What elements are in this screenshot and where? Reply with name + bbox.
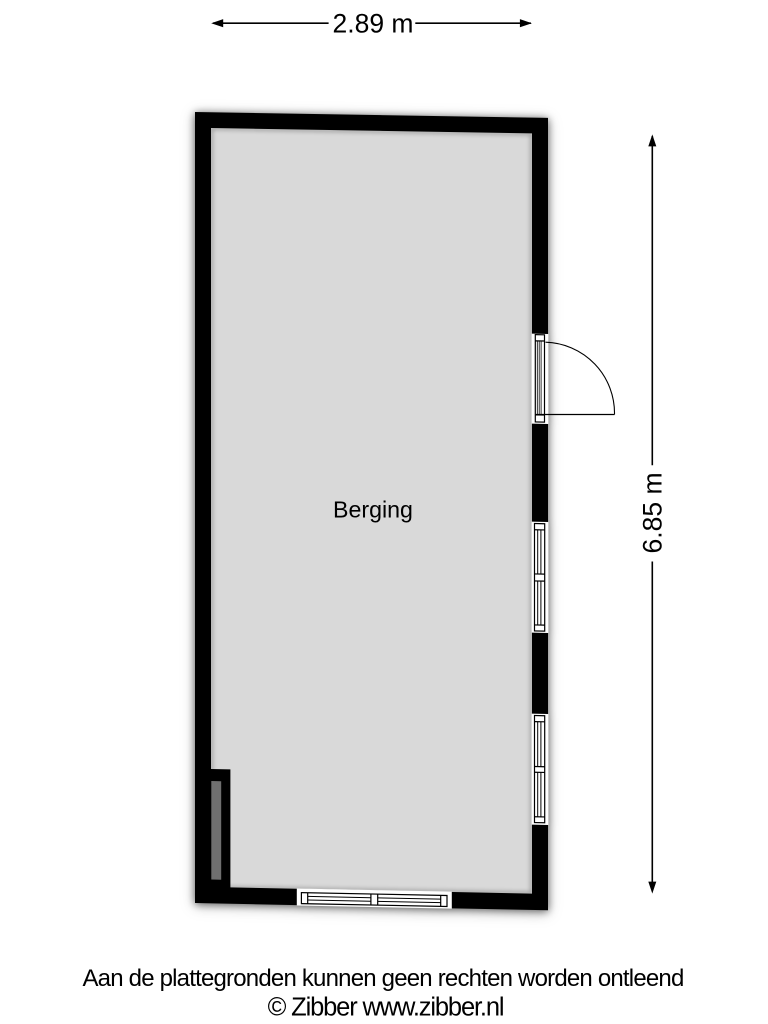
svg-text:2.89 m: 2.89 m [332,8,413,38]
svg-text:6.85 m: 6.85 m [638,472,668,553]
svg-text:Berging: Berging [333,496,413,522]
svg-text:Aan de plattegronden kunnen ge: Aan de plattegronden kunnen geen rechten… [82,965,683,992]
svg-text:© Zibber www.zibber.nl: © Zibber www.zibber.nl [268,994,504,1022]
